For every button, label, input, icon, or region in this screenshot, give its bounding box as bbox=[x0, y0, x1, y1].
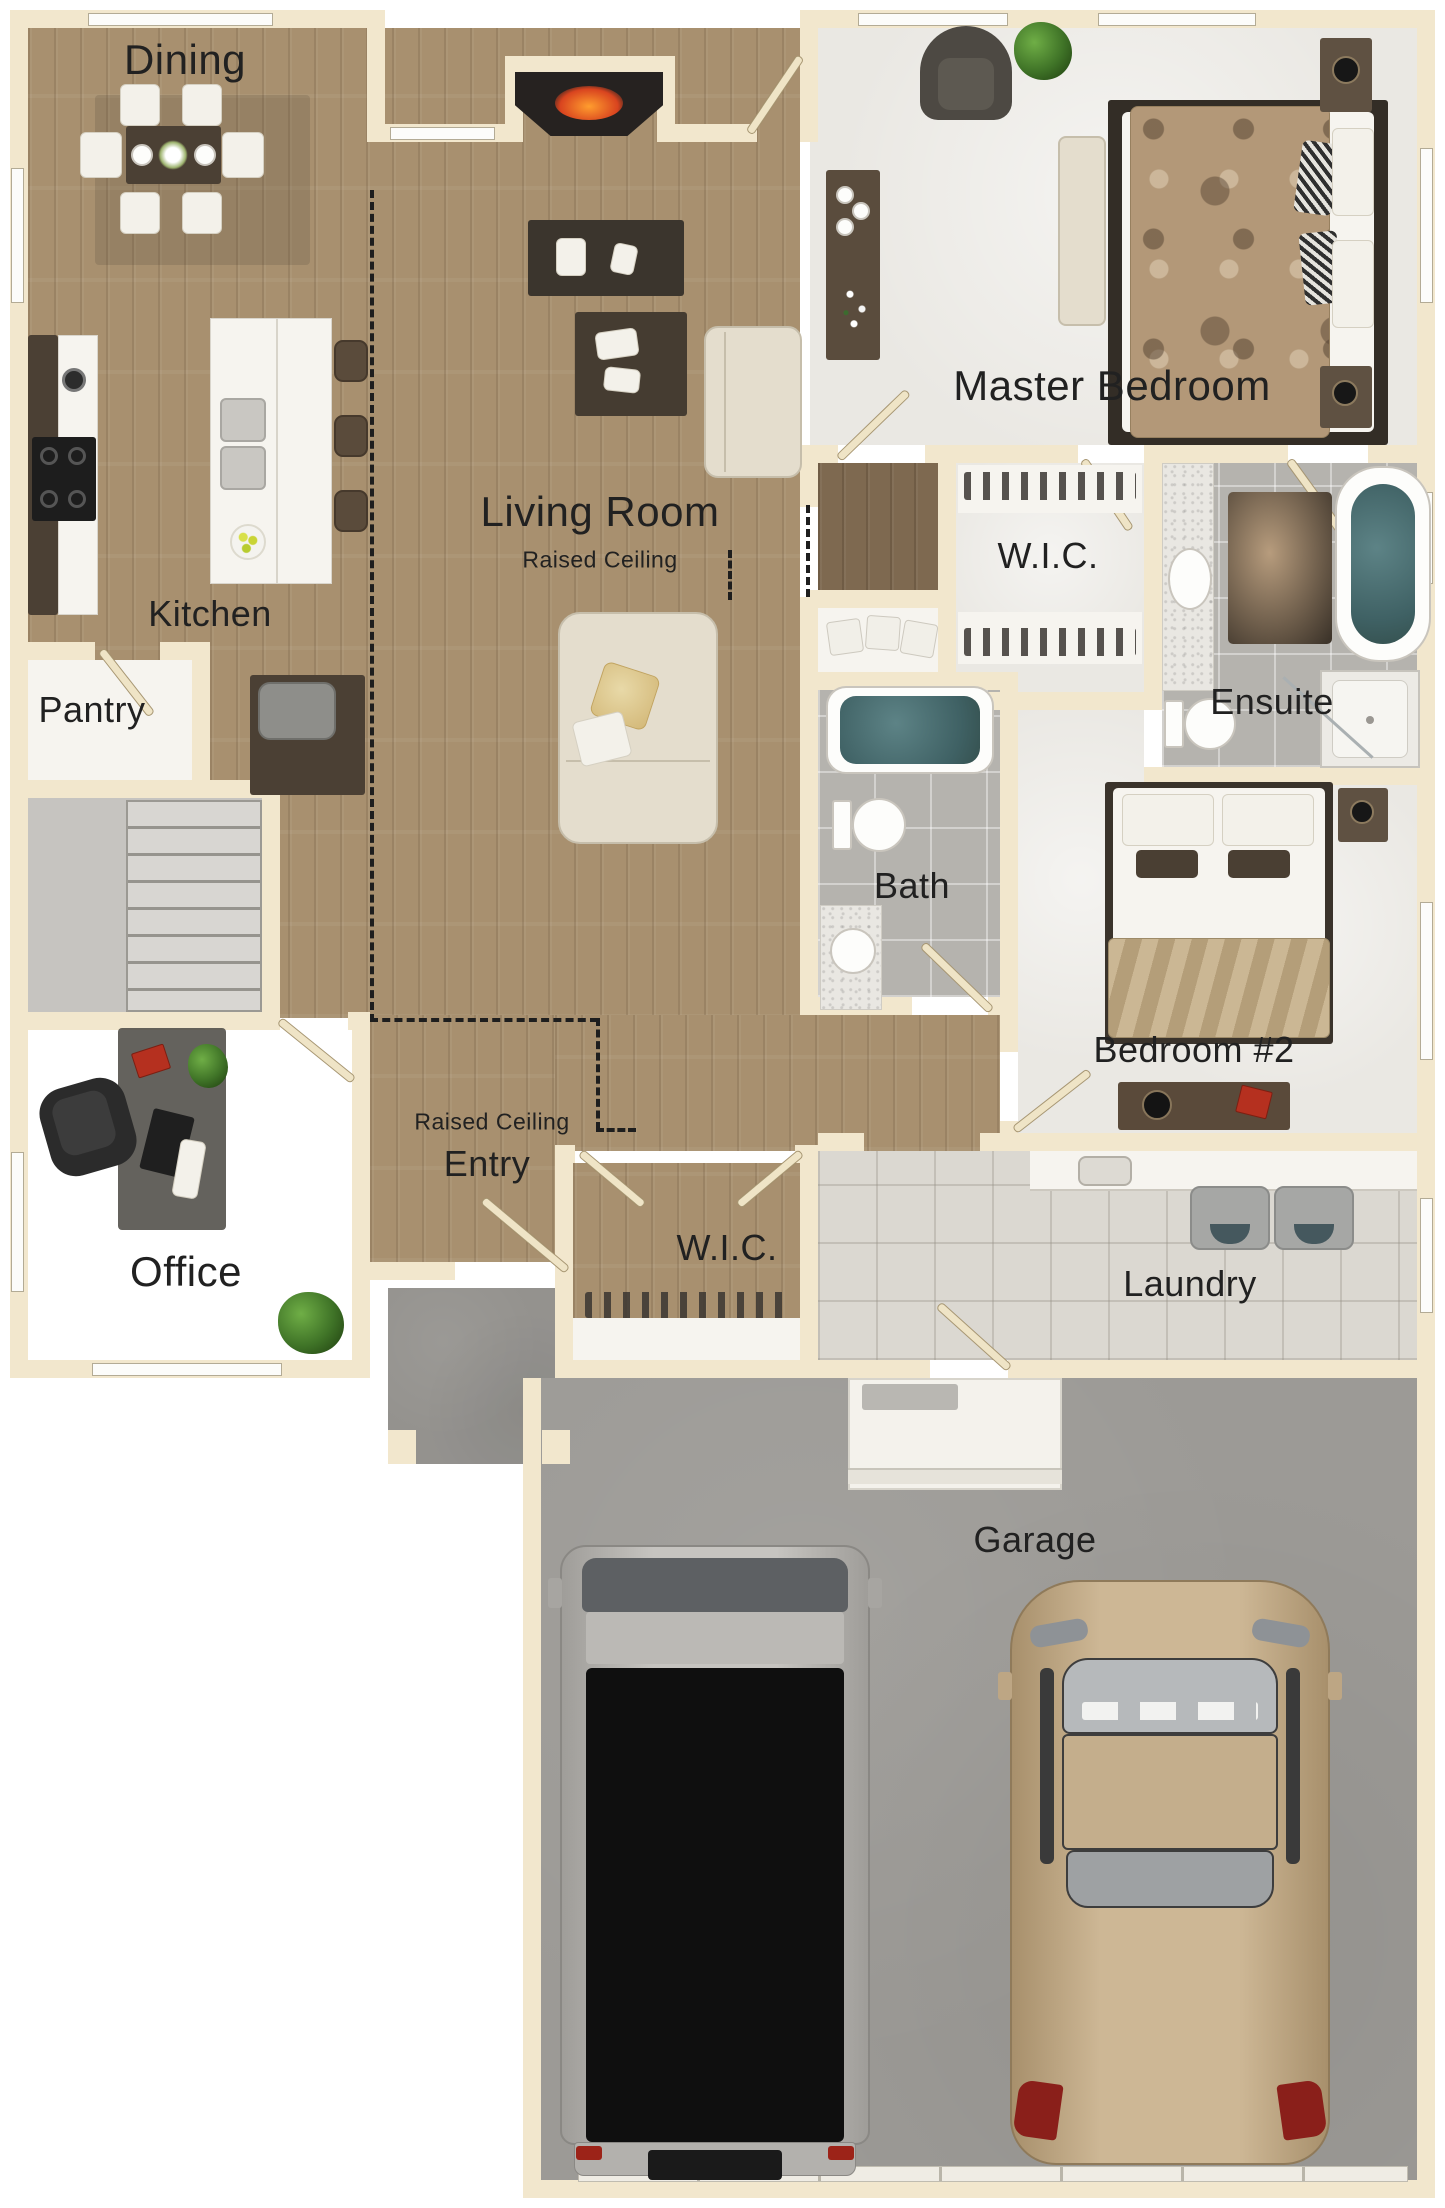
dining-chair bbox=[182, 84, 222, 126]
wall-segment bbox=[800, 597, 818, 1015]
car-windshield bbox=[1062, 1658, 1278, 1734]
barstool bbox=[334, 490, 368, 532]
car-sunroof-glint bbox=[1082, 1702, 1258, 1720]
truck-taillight bbox=[828, 2146, 854, 2160]
island-sink bbox=[220, 446, 266, 490]
towel-stack bbox=[865, 615, 901, 651]
raised-ceiling-line bbox=[596, 1128, 636, 1132]
coffee-table-book bbox=[594, 327, 639, 361]
laundry-sink bbox=[1078, 1156, 1132, 1186]
dining-chair bbox=[222, 132, 264, 178]
truck-bumper bbox=[648, 2150, 782, 2180]
coffee-table-book bbox=[603, 366, 641, 394]
pillow-accent bbox=[1136, 850, 1198, 878]
wall-segment bbox=[810, 590, 956, 608]
armchair-cushion bbox=[938, 58, 994, 110]
record-player bbox=[1332, 56, 1360, 84]
console-item bbox=[556, 238, 586, 276]
stove-burner bbox=[68, 490, 86, 508]
raised-ceiling-line bbox=[370, 1018, 598, 1022]
bath-sink bbox=[830, 928, 876, 974]
wall-segment bbox=[800, 445, 818, 507]
truck-bed bbox=[586, 1668, 844, 2142]
stove-burner bbox=[40, 447, 58, 465]
pillow bbox=[1332, 240, 1374, 328]
wall-segment bbox=[192, 642, 210, 780]
potted-plant bbox=[1014, 22, 1072, 80]
wall-segment bbox=[800, 10, 818, 142]
wall-segment bbox=[523, 2180, 1435, 2198]
floor-entry bbox=[370, 1015, 555, 1262]
wall-segment bbox=[262, 780, 280, 1030]
room-label-master-bedroom: Master Bedroom bbox=[953, 362, 1270, 410]
sofa bbox=[704, 326, 802, 478]
room-sublabel-living-room: Raised Ceiling bbox=[522, 547, 677, 574]
truck-windshield bbox=[582, 1558, 848, 1612]
room-label-master-wic: W.I.C. bbox=[998, 535, 1099, 577]
desk-chair bbox=[258, 682, 336, 740]
wall-segment bbox=[925, 445, 1078, 463]
wall-segment bbox=[505, 56, 675, 74]
room-label-bedroom2: Bedroom #2 bbox=[1093, 1029, 1294, 1071]
wall-segment bbox=[1000, 672, 1018, 1052]
dining-chair bbox=[120, 84, 160, 126]
wall-segment bbox=[1144, 445, 1162, 710]
wall-segment bbox=[1008, 1360, 1435, 1378]
record-player bbox=[1350, 800, 1374, 824]
ensuite-sink bbox=[1168, 548, 1212, 610]
toilet-bowl bbox=[852, 798, 906, 852]
car-side-window bbox=[1286, 1668, 1300, 1864]
porch-pillar bbox=[388, 1430, 416, 1464]
dining-centerpiece bbox=[158, 140, 188, 170]
room-label-ensuite: Ensuite bbox=[1210, 681, 1334, 723]
car-taillight bbox=[1276, 2079, 1327, 2141]
wall-segment bbox=[10, 780, 280, 798]
garage-mat bbox=[862, 1384, 958, 1410]
bathtub-water bbox=[1351, 484, 1415, 644]
barstool bbox=[334, 415, 368, 457]
wall-segment bbox=[370, 1262, 455, 1280]
dresser-vase bbox=[852, 202, 870, 220]
window bbox=[390, 127, 495, 140]
car-mirror bbox=[998, 1672, 1012, 1700]
duvet-bedroom2 bbox=[1108, 938, 1330, 1038]
bed-bench bbox=[1058, 136, 1106, 326]
wall-segment bbox=[1012, 1133, 1435, 1151]
room-label-dining: Dining bbox=[124, 36, 246, 84]
fireplace-fire bbox=[555, 86, 623, 120]
island-divider bbox=[276, 318, 278, 584]
floor-plan: Dining Master Bedroom Living Room Raised… bbox=[0, 0, 1445, 2208]
car-side-window bbox=[1040, 1668, 1054, 1864]
flower-bouquet bbox=[834, 272, 874, 346]
car-taillight bbox=[1012, 2079, 1063, 2141]
tv-console bbox=[528, 220, 684, 296]
wall-segment bbox=[800, 1145, 818, 1378]
shoe-rack bbox=[964, 628, 1136, 656]
wall-segment bbox=[367, 10, 385, 142]
raised-ceiling-line bbox=[728, 550, 732, 600]
raised-ceiling-line bbox=[596, 1018, 600, 1130]
bathtub-water bbox=[840, 696, 980, 764]
wic-shelf bbox=[573, 1318, 800, 1360]
stove-burner bbox=[40, 490, 58, 508]
ensuite-rug bbox=[1228, 492, 1332, 644]
window bbox=[858, 13, 1008, 26]
towel-stack bbox=[826, 618, 864, 656]
raised-ceiling-line bbox=[370, 190, 374, 1022]
fruit-bowl bbox=[230, 524, 266, 560]
wall-segment bbox=[1417, 1360, 1435, 2198]
dresser-vase bbox=[836, 218, 854, 236]
shoe-rack bbox=[964, 472, 1136, 500]
pillow bbox=[1222, 794, 1314, 846]
room-label-pantry: Pantry bbox=[38, 689, 145, 731]
wall-segment bbox=[352, 1012, 370, 1378]
dining-chair bbox=[120, 192, 160, 234]
garage-step bbox=[848, 1468, 1062, 1484]
desk-plant bbox=[188, 1044, 228, 1088]
room-label-entry-wic: W.I.C. bbox=[677, 1227, 778, 1269]
office-door bbox=[277, 1017, 356, 1084]
wall-segment bbox=[10, 642, 95, 660]
toilet-tank bbox=[1164, 700, 1184, 748]
car-rear-window bbox=[1066, 1850, 1274, 1908]
window bbox=[1420, 148, 1433, 303]
wall-segment bbox=[938, 463, 956, 710]
pillow bbox=[1332, 128, 1374, 216]
car-mirror bbox=[1328, 1672, 1342, 1700]
floor-suite-hall bbox=[818, 463, 938, 593]
room-label-kitchen: Kitchen bbox=[148, 593, 272, 635]
wall-segment bbox=[818, 1133, 864, 1151]
truck-taillight bbox=[576, 2146, 602, 2160]
window bbox=[1420, 1198, 1433, 1313]
shoe-rack bbox=[585, 1292, 791, 1318]
pillow bbox=[1122, 794, 1214, 846]
dresser-vase bbox=[836, 186, 854, 204]
shower-drain bbox=[1366, 716, 1374, 724]
truck-roof bbox=[586, 1612, 844, 1664]
sofa-seat-line bbox=[724, 332, 726, 472]
window bbox=[1098, 13, 1256, 26]
towel-stack bbox=[899, 619, 938, 658]
raised-ceiling-line bbox=[806, 505, 810, 597]
potted-plant bbox=[278, 1292, 344, 1354]
barstool bbox=[334, 340, 368, 382]
dining-chair bbox=[182, 192, 222, 234]
wall-segment bbox=[1368, 445, 1435, 463]
coffee-maker bbox=[62, 368, 86, 392]
truck-mirror bbox=[548, 1578, 562, 1608]
truck-mirror bbox=[868, 1578, 882, 1608]
toilet-tank bbox=[832, 800, 852, 850]
window bbox=[11, 168, 24, 303]
place-setting bbox=[131, 144, 153, 166]
window bbox=[1420, 902, 1433, 1060]
wall-segment bbox=[980, 1133, 1012, 1151]
car-roof bbox=[1062, 1734, 1278, 1850]
desk-record bbox=[1142, 1090, 1172, 1120]
dining-chair bbox=[80, 132, 122, 178]
room-label-laundry: Laundry bbox=[1123, 1263, 1257, 1305]
stairs bbox=[126, 800, 262, 1012]
porch-pillar bbox=[542, 1430, 570, 1464]
window bbox=[88, 13, 273, 26]
stove-burner bbox=[68, 447, 86, 465]
wall-segment bbox=[657, 124, 757, 142]
room-label-entry: Entry bbox=[444, 1143, 531, 1185]
wall-segment bbox=[555, 1360, 930, 1378]
room-label-bath: Bath bbox=[874, 865, 950, 907]
room-label-garage: Garage bbox=[973, 1519, 1096, 1561]
room-label-living-room: Living Room bbox=[481, 488, 720, 536]
island-sink bbox=[220, 398, 266, 442]
window bbox=[11, 1152, 24, 1292]
wall-segment bbox=[523, 1378, 541, 2198]
window bbox=[92, 1363, 282, 1376]
wall-segment bbox=[1160, 445, 1288, 463]
room-sublabel-entry: Raised Ceiling bbox=[414, 1109, 569, 1136]
record-player bbox=[1332, 380, 1358, 406]
room-label-office: Office bbox=[130, 1248, 242, 1296]
place-setting bbox=[194, 144, 216, 166]
pillow-accent bbox=[1228, 850, 1290, 878]
